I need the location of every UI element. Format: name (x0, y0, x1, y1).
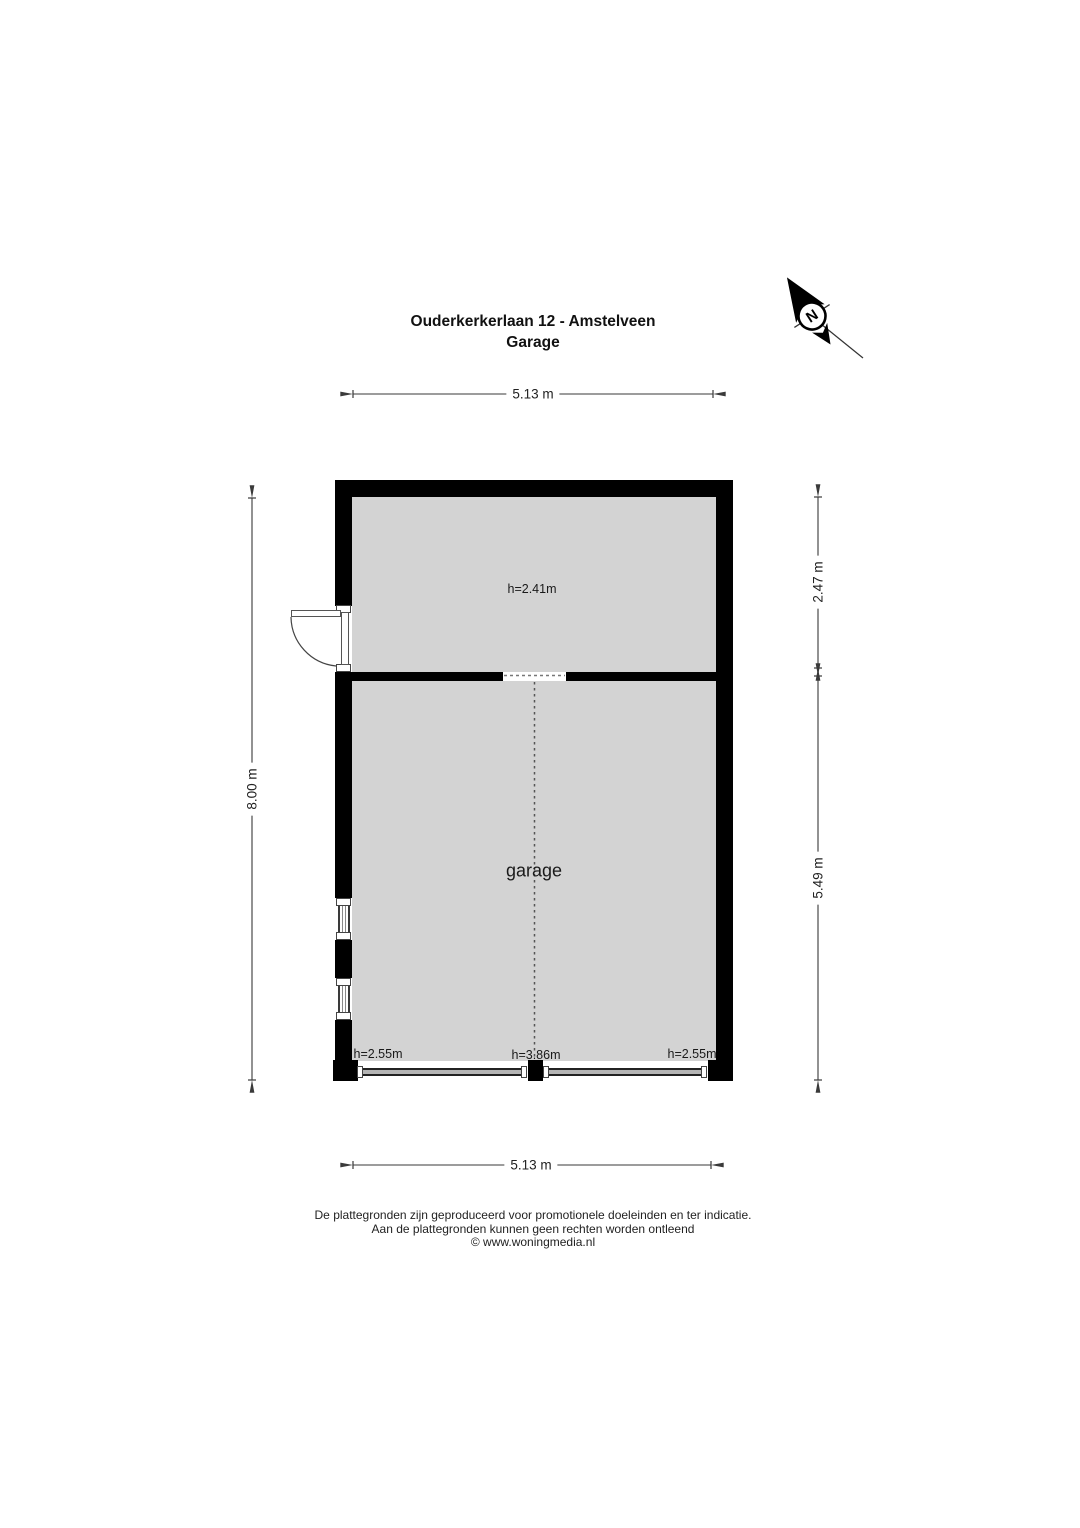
garage-height-center-label: h=3.86m (512, 1048, 561, 1062)
upper-room-height-label: h=2.41m (508, 582, 557, 596)
footer-line-2: Aan de plattegronden kunnen geen rechten… (140, 1223, 926, 1237)
door-swing-arc (291, 617, 336, 666)
wall-left-mid (335, 672, 352, 898)
wall-top (335, 480, 733, 497)
floorplan-page: Ouderkerkerlaan 12 - Amstelveen Garage (0, 0, 1080, 1528)
garage-door-right-panel (549, 1068, 702, 1076)
divider-wall-right (566, 672, 733, 681)
garage-door-cap-4 (701, 1066, 707, 1078)
dim-label-left: 8.00 m (245, 762, 260, 815)
footer-disclaimer: De plattegronden zijn geproduceerd voor … (140, 1209, 926, 1250)
window2-inner-pane (342, 986, 346, 1012)
footer-line-1: De plattegronden zijn geproduceerd voor … (140, 1209, 926, 1223)
wall-right (716, 480, 733, 1061)
divider-wall-left (335, 672, 503, 681)
window1-cap-bottom (336, 932, 351, 940)
door-leaf-closed (341, 612, 349, 665)
garage-height-right-label: h=2.55m (668, 1047, 717, 1061)
dim-label-right-lower: 5.49 m (811, 851, 826, 904)
wall-left-upper (335, 480, 352, 606)
garage-post-right (708, 1060, 733, 1081)
dim-label-right-upper: 2.47 m (811, 555, 826, 608)
window2-cap-top (336, 978, 351, 986)
garage-room-label: garage (506, 861, 562, 882)
garage-door-cap-2 (521, 1066, 527, 1078)
title-block: Ouderkerkerlaan 12 - Amstelveen Garage (233, 311, 833, 353)
garage-post-left (333, 1060, 358, 1081)
garage-door-left-panel (363, 1068, 522, 1076)
window2-cap-bottom (336, 1012, 351, 1020)
footer-line-3: © www.woningmedia.nl (140, 1236, 926, 1250)
page-title: Ouderkerkerlaan 12 - Amstelveen (233, 311, 833, 332)
garage-post-center (528, 1060, 543, 1081)
window2-glazing (338, 986, 350, 1012)
garage-height-left-label: h=2.55m (354, 1047, 403, 1061)
window1-glazing (338, 906, 350, 932)
wall-left-between-windows (335, 940, 352, 978)
door-jamb-bottom (336, 664, 351, 672)
door-leaf-open (291, 610, 341, 617)
dim-label-top: 5.13 m (506, 387, 559, 402)
wall-left-lower (335, 1020, 352, 1061)
page-subtitle: Garage (233, 332, 833, 353)
window1-cap-top (336, 898, 351, 906)
dim-label-bottom: 5.13 m (504, 1158, 557, 1173)
window1-inner-pane (342, 906, 346, 932)
